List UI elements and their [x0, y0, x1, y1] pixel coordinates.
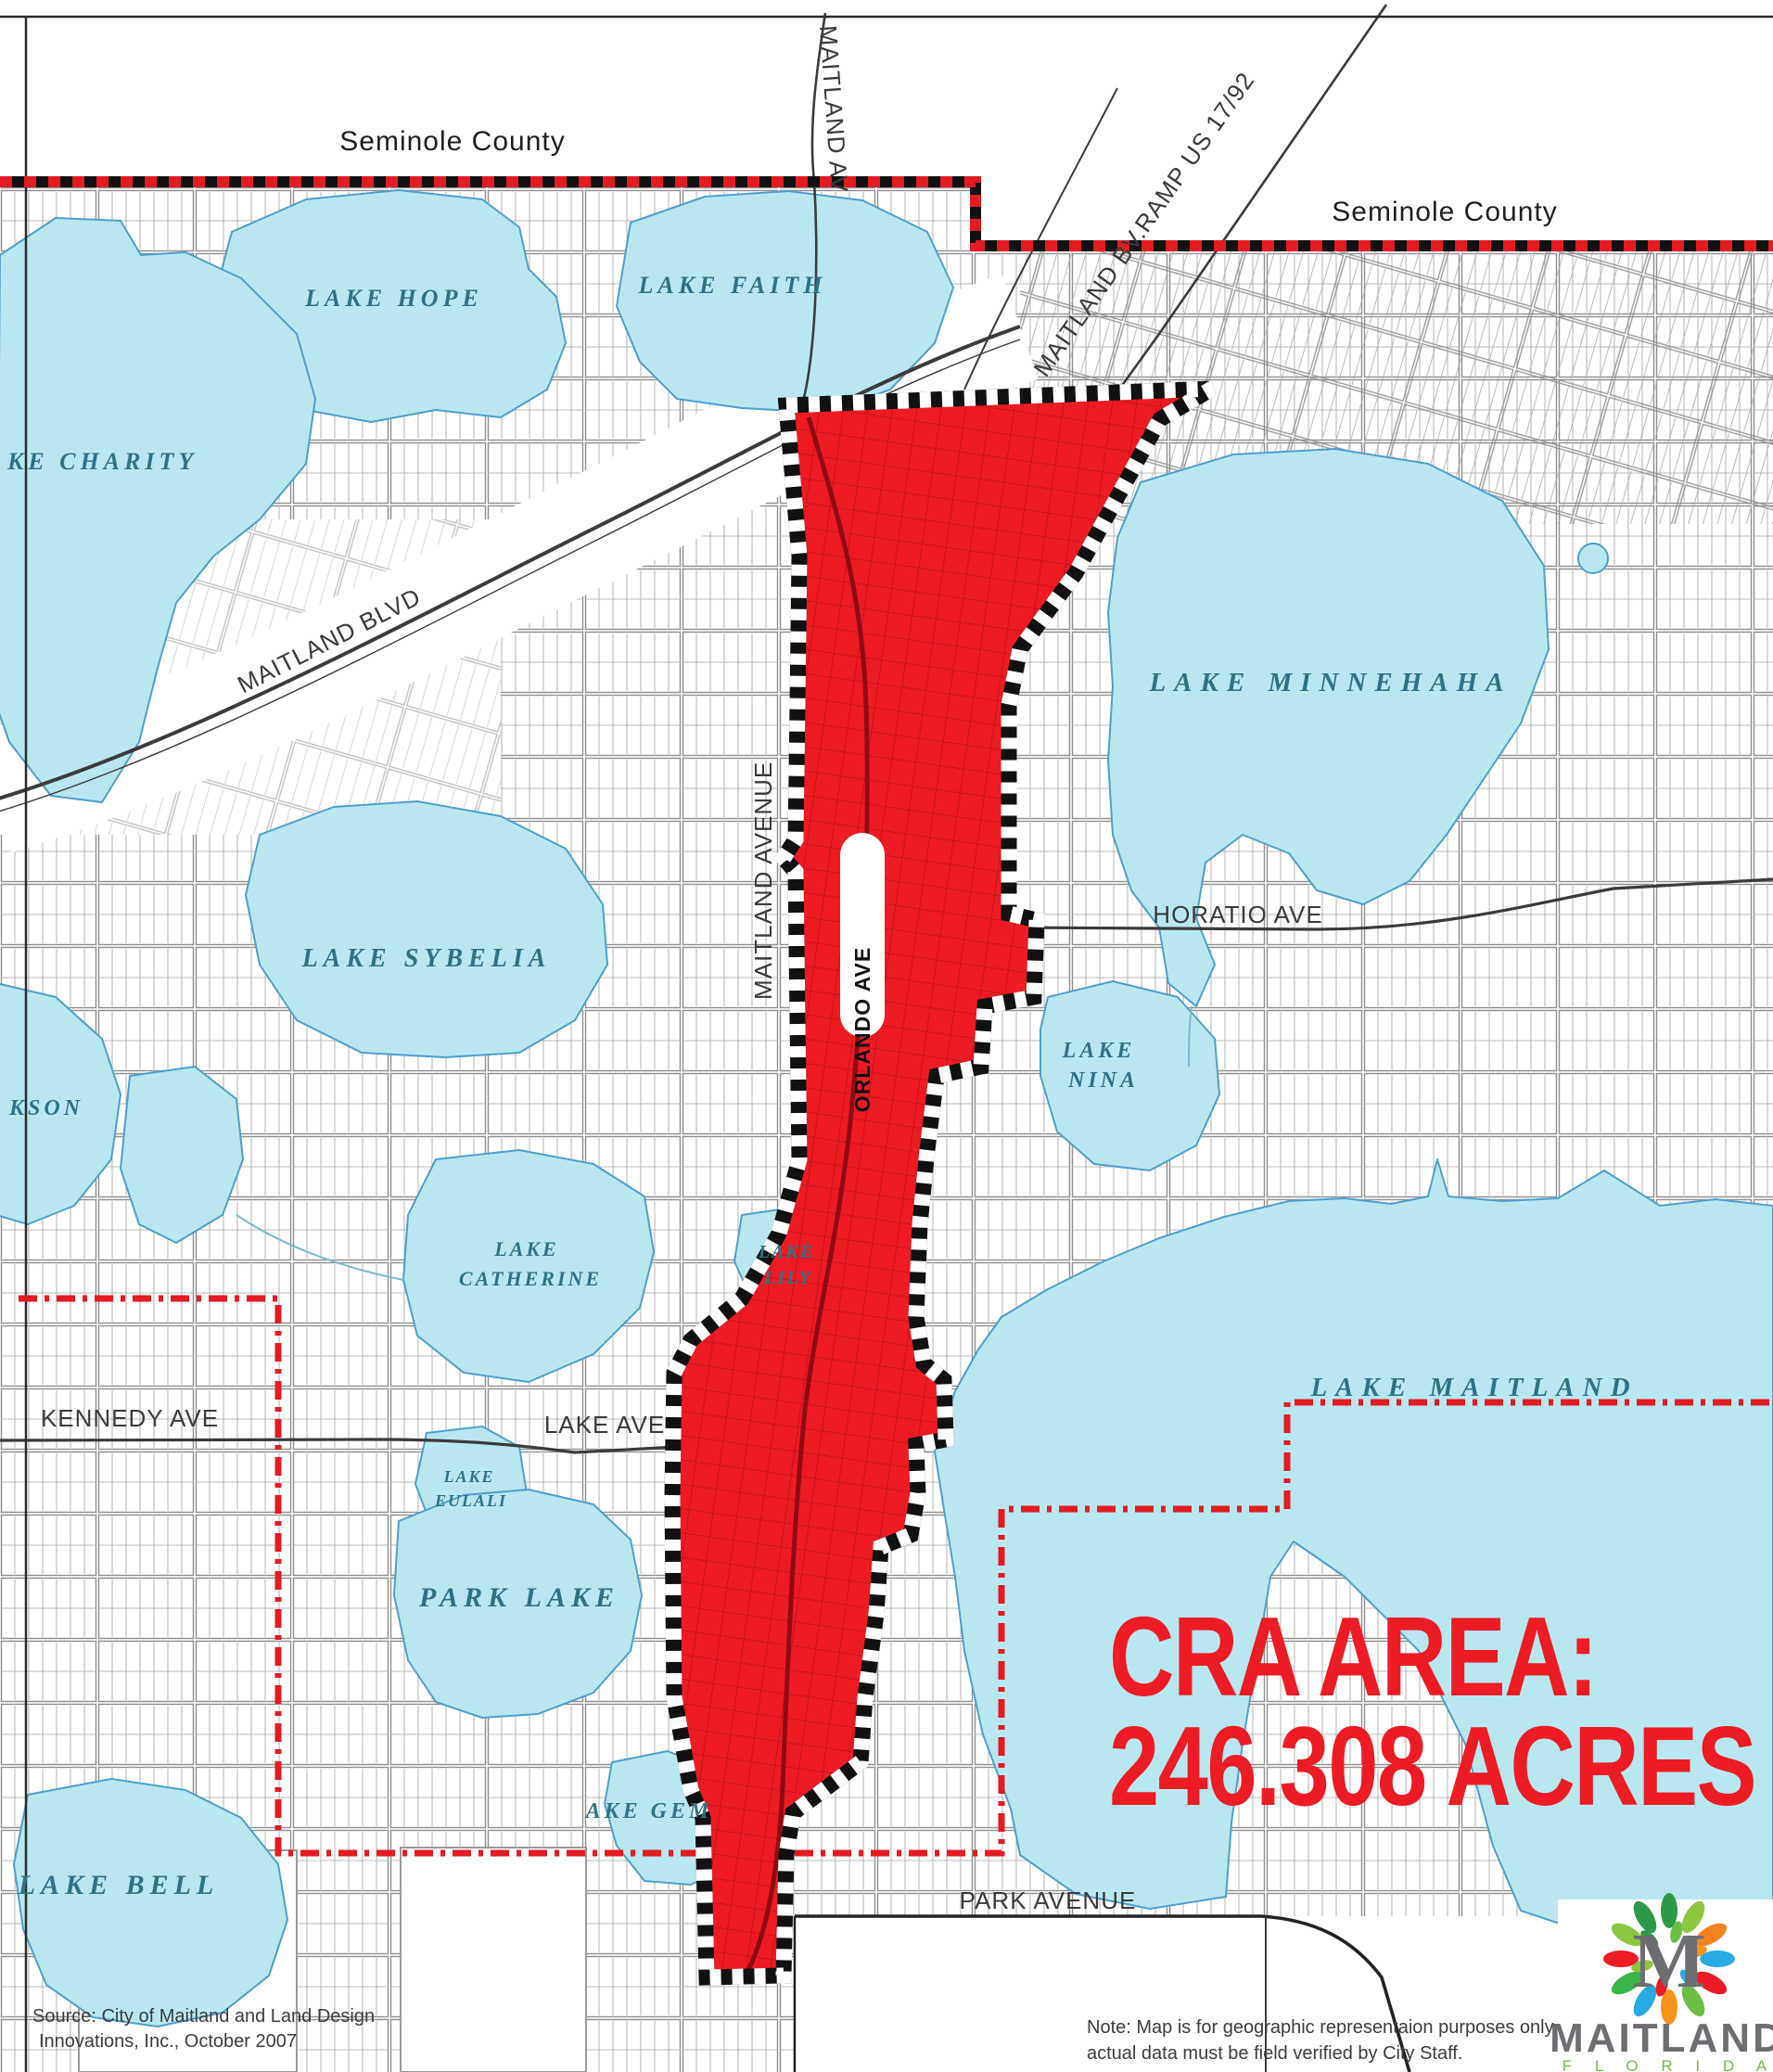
- cra-map-page: ORLANDO AVE Seminole County Seminole Cou…: [0, 0, 1773, 2072]
- lake-catherine-label-2: CATHERINE: [459, 1267, 602, 1290]
- lake-lily-label-2: LILY: [763, 1268, 812, 1288]
- lake-faith-label: LAKE FAITH: [638, 272, 827, 299]
- lake-minnehaha-label: LAKE MINNEHAHA: [1148, 668, 1512, 697]
- maitland-cra-map: ORLANDO AVE Seminole County Seminole Cou…: [0, 0, 1773, 2072]
- lake-eulali-label-1: LAKE: [442, 1467, 494, 1486]
- cra-area-line2: 246.308 ACRES: [1109, 1704, 1755, 1830]
- logo-state-name: F L O R I D A: [1563, 2057, 1773, 2072]
- seminole-county-label-1: Seminole County: [339, 126, 565, 157]
- maitland-logo: M MAITLAND F L O R I D A: [1550, 1893, 1773, 2072]
- orlando-ave-label: ORLANDO AVE: [850, 947, 874, 1112]
- maitland-avenue-label: MAITLAND AVENUE: [749, 761, 777, 1000]
- lake-eulali-label-2: EULALI: [434, 1491, 507, 1510]
- park-avenue-label: PARK AVENUE: [960, 1887, 1137, 1914]
- source-note-line1: Source: City of Maitland and Land Design: [32, 2006, 375, 2027]
- lake-nina-label-2: NINA: [1067, 1068, 1139, 1093]
- horatio-ave-label: HORATIO AVE: [1153, 901, 1322, 928]
- lake-maitland-label: LAKE MAITLAND: [1309, 1373, 1638, 1402]
- kennedy-ave-label: KENNEDY AVE: [41, 1404, 219, 1432]
- lake-bell-label: LAKE BELL: [18, 1870, 220, 1900]
- pond-east: [1578, 544, 1608, 573]
- lake-jackson-label: KSON: [8, 1096, 83, 1120]
- logo-monogram: M: [1632, 1918, 1705, 2004]
- lake-ave-label: LAKE AVE: [544, 1411, 665, 1439]
- park-lake-label: PARK LAKE: [418, 1582, 619, 1613]
- lake-catherine-label-1: LAKE: [493, 1237, 558, 1260]
- disclaimer-line2: actual data must be field verified by Ci…: [1087, 2043, 1462, 2064]
- cra-area-line1: CRA AREA:: [1109, 1594, 1597, 1720]
- lake-charity-label: KE CHARITY: [6, 448, 198, 475]
- lake-hope-label: LAKE HOPE: [304, 285, 483, 312]
- lake-nina-label-1: LAKE: [1062, 1039, 1136, 1063]
- lake-gem-label: AKE GEM: [584, 1799, 713, 1823]
- lake-sybelia-label: LAKE SYBELIA: [301, 944, 552, 973]
- lake-lily-label-1: LAKE: [758, 1242, 814, 1262]
- logo-city-name: MAITLAND: [1550, 2015, 1773, 2061]
- disclaimer-line1: Note: Map is for geographic representaio…: [1087, 2017, 1558, 2038]
- source-note-line2: Innovations, Inc., October 2007: [39, 2031, 297, 2052]
- seminole-county-label-2: Seminole County: [1332, 197, 1557, 227]
